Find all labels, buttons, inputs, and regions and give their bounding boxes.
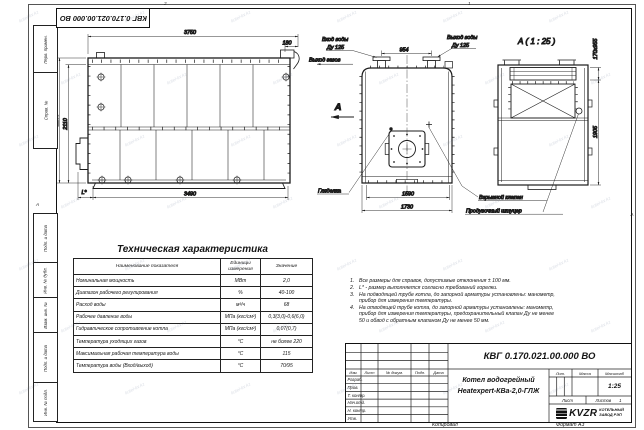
tech-characteristics: Техническая характеристика Наименование …: [73, 244, 312, 373]
table-row: Диапазон рабочего регулирования%40-100: [74, 287, 313, 299]
dim-l-star: L*: [81, 190, 87, 196]
tb-sheets-label: Листов: [595, 398, 611, 403]
water-inlet-nozzle: [373, 57, 390, 68]
tb-row-utv: Утв.: [348, 416, 358, 421]
kvzr-logo-text: KVZR: [569, 408, 597, 419]
label-explosion-valve: Взрывной клапан: [479, 194, 523, 201]
margin-box-sprav: Справ. №: [33, 72, 58, 149]
tb-row-nachotd: Нач.отд.: [348, 400, 366, 405]
note-number: 4.: [350, 305, 359, 324]
tb-row-prov: Пров.: [348, 385, 359, 390]
gas-duct-slot: [510, 68, 576, 81]
label-gas-outlet: Выход газов: [309, 58, 341, 64]
corner-fitting: [445, 62, 453, 69]
zone-mark-a-right: А: [631, 212, 634, 217]
table-cell: м³/ч: [221, 299, 261, 311]
margin-box-perv-primen: Перв. примен.: [33, 25, 58, 74]
valve-position-mark: [426, 122, 432, 128]
col-header: Единицы измерения: [221, 259, 261, 275]
table-cell: °С: [221, 360, 261, 372]
table-cell: 70/95: [261, 360, 313, 372]
notes-list: 1.Все размеры для справок, допустимые от…: [350, 278, 558, 324]
table-row: Рабочее давление водыМПа (кгс/см²)0,3(3,…: [74, 311, 313, 323]
company-name: КОТЕЛЬНЫЙ ЗАВОД РЭП: [599, 408, 624, 417]
product-name-line1: Котел водогрейный: [462, 376, 534, 386]
front-view: 954 1590 1730 Вход воды Ду 125 Выход вод…: [309, 35, 477, 213]
dim-1905: 1905: [593, 125, 599, 138]
drawing-views: 3750 180 2230 2110 3490 L*: [0, 0, 644, 242]
tb-sheet-label: Лист: [549, 396, 586, 404]
note-item: 3.На подводящей трубе котла, до запорной…: [350, 292, 558, 305]
note-item: 2.L* - размер выполняется согласно требо…: [350, 285, 558, 291]
tb-col-data: Дата: [429, 369, 448, 376]
kvzr-logo-icon: [556, 408, 567, 419]
margin-box-podp-data-2: Подп. и дата: [33, 332, 58, 384]
format-label: Формат А3: [556, 422, 584, 428]
tb-lit-label: Лит.: [549, 369, 572, 377]
blowdown-fitting-mark: [576, 108, 582, 114]
drawing-designation: КВГ 0.170.021.00.000 ВО: [448, 344, 631, 369]
tb-sheets-value: 1: [619, 398, 621, 403]
product-name-line2: Heatexpert-КВа-2,0-ГЛЖ: [458, 387, 540, 397]
tb-row-nkontr: Н. контр.: [348, 408, 367, 413]
table-cell: Рабочее давление воды: [74, 311, 221, 323]
label-sight-glass: Гляделка: [318, 189, 341, 195]
a-view: А ( 1 : 25 ): [429, 37, 601, 215]
table-cell: °С: [221, 348, 261, 360]
table-cell: °С: [221, 335, 261, 347]
margin-box-inv-dubl: Инв. № дубл.: [33, 262, 58, 299]
table-cell: Номинальная мощность: [74, 275, 221, 287]
margin-label: Подп. и дата: [43, 345, 48, 372]
margin-label: Инв. № подл.: [43, 389, 48, 416]
tb-mass-label: Масса: [572, 369, 598, 377]
table-cell: Температура уходящих газов: [74, 335, 221, 347]
note-text: На подводящей трубе котла, до запорной а…: [359, 292, 558, 305]
tb-row-tkontr: Т. контр.: [348, 393, 366, 398]
table-row: Гидравлическое сопротивление котлаМПа (к…: [74, 323, 313, 335]
note-text: L* - размер выполняется согласно требова…: [359, 285, 558, 291]
tb-col-izm: Изм.: [346, 369, 361, 376]
table-cell: Максимальная рабочая температура воды: [74, 348, 221, 360]
base-skid: [93, 183, 285, 189]
table-cell: 0,07(0,7): [261, 323, 313, 335]
col-header: Наименование показателя: [74, 259, 221, 275]
note-number: 2.: [350, 285, 359, 291]
dim-1730: 1730: [401, 204, 413, 210]
table-row: Температура воды (Вход/выход)°С70/95: [74, 360, 313, 372]
table-cell: Температура воды (Вход/выход): [74, 360, 221, 372]
dim-954: 954: [400, 47, 409, 53]
drawing-sheet: kotel-kv.kzkotel-kv.kzkotel-kv.kzkotel-k…: [0, 0, 644, 430]
stamp-code: КВГ 0.170.021.00.000 ВО: [60, 14, 147, 23]
rotated-designation-stamp: КВГ 0.170.021.00.000 ВО: [56, 8, 150, 28]
a-view-title: А ( 1 : 25 ): [517, 37, 556, 46]
scale-value: 1:25: [598, 377, 631, 396]
margin-label: Взам. инв. №: [43, 302, 48, 329]
section-letter-a: А: [334, 102, 342, 113]
note-number: 1.: [350, 278, 359, 284]
table-row: Температура уходящих газов°Сне более 220: [74, 335, 313, 347]
table-row: Максимальная рабочая температура воды°С1…: [74, 348, 313, 360]
zone-mark-2: 2: [164, 1, 167, 6]
dim-180: 180: [283, 40, 292, 46]
label-blowdown-fitting: Продувочный штуцер: [466, 208, 522, 215]
margin-box-vzam-inv: Взам. инв. №: [33, 297, 58, 334]
note-text: На отводящей трубе котла, до запорной ар…: [359, 305, 558, 324]
table-cell: Гидравлическое сопротивление котла: [74, 323, 221, 335]
table-row: Расход водым³/ч68: [74, 299, 313, 311]
zone-mark-a-left: А: [36, 202, 39, 207]
table-cell: 2,0: [261, 275, 313, 287]
note-number: 3.: [350, 292, 359, 305]
tb-scale-label: Масштаб: [598, 369, 631, 377]
tech-table: Наименование показателя Единицы измерени…: [73, 258, 313, 373]
table-cell: МПа (кгс/см²): [221, 323, 261, 335]
tb-col-podp: Подп.: [411, 369, 429, 376]
dim-1590: 1590: [402, 191, 414, 197]
table-cell: не более 220: [261, 335, 313, 347]
table-cell: 115: [261, 348, 313, 360]
margin-box-podp-data-1: Подп. и дата: [33, 213, 58, 264]
table-cell: 0,3(3,0)-0,6(6,0): [261, 311, 313, 323]
note-item: 4.На отводящей трубе котла, до запорной …: [350, 305, 558, 324]
company-name-line2: ЗАВОД РЭП: [599, 413, 624, 418]
table-cell: МВт: [221, 275, 261, 287]
zone-mark-1: 1: [468, 1, 471, 6]
margin-box-inv-podl: Инв. № подл.: [33, 382, 58, 422]
col-header: Значение: [261, 259, 313, 275]
burner-mount: [76, 138, 88, 170]
tb-row-razrab: Разраб.: [348, 377, 363, 382]
table-cell: Расход воды: [74, 299, 221, 311]
gas-outlet-flange: [281, 50, 295, 58]
table-cell: 68: [261, 299, 313, 311]
label-water-inlet: Вход воды: [322, 37, 348, 43]
dim-3490: 3490: [184, 191, 196, 197]
margin-label: Инв. № дубл.: [43, 267, 48, 293]
title-block: Изм. Лист № докум. Подп. Дата Разраб. Пр…: [345, 343, 632, 423]
table-cell: МПа (кгс/см²): [221, 311, 261, 323]
table-title: Техническая характеристика: [73, 244, 312, 258]
side-view: 3750 180 2230 2110 3490 L*: [54, 30, 299, 200]
copied-label: Копировал: [432, 422, 458, 428]
dim-2110: 2110: [63, 118, 69, 131]
tb-col-dokum: № докум.: [378, 369, 411, 376]
tb-sheets: Листов 1: [586, 396, 631, 404]
sight-glass-mark: [389, 127, 392, 130]
table-cell: %: [221, 287, 261, 299]
label-water-outlet: Выход воды: [447, 35, 477, 41]
dim-3750: 3750: [184, 30, 196, 36]
table-row: Номинальная мощностьМВт2,0: [74, 275, 313, 287]
company-logo: KVZR КОТЕЛЬНЫЙ ЗАВОД РЭП: [549, 404, 631, 422]
note-item: 1.Все размеры для справок, допустимые от…: [350, 278, 558, 284]
lifting-lug: [97, 53, 105, 59]
product-name: Котел водогрейный Heatexpert-КВа-2,0-ГЛЖ: [448, 369, 549, 404]
dim-170x955: 170x955: [593, 38, 599, 60]
table-cell: Диапазон рабочего регулирования: [74, 287, 221, 299]
margin-label: Подп. и дата: [43, 225, 48, 252]
margin-label: Перв. примен.: [43, 35, 48, 64]
table-cell: 40-100: [261, 287, 313, 299]
tb-col-list: Лист: [361, 369, 378, 376]
margin-label: Справ. №: [43, 101, 48, 121]
note-text: Все размеры для справок, допустимые откл…: [359, 278, 558, 284]
table-header-row: Наименование показателя Единицы измерени…: [74, 259, 313, 275]
